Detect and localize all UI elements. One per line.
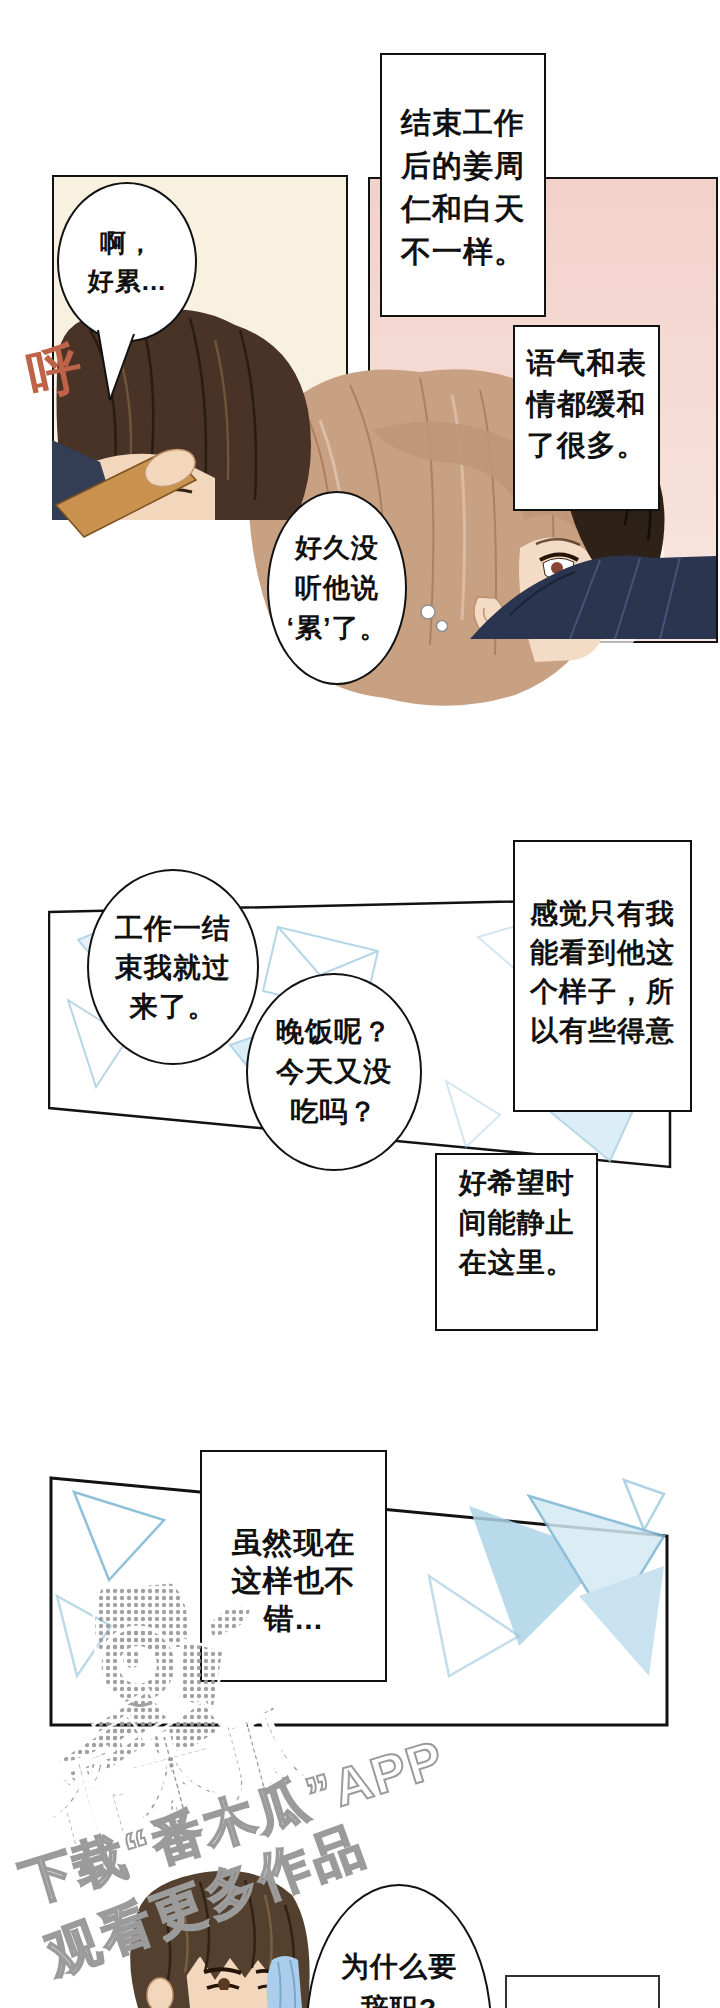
narration-box-4: 好希望时 间能静止 在这里。: [435, 1153, 598, 1331]
narration-line: 感觉只有我: [530, 894, 675, 933]
narration-box-1: 结束工作 后的姜周 仁和白天 不一样。: [380, 53, 546, 317]
bubble-line: 晚饭呢？: [276, 1012, 392, 1052]
narration-line: 不一样。: [401, 230, 525, 273]
narration-line: 能看到他这: [530, 933, 675, 972]
narration-line: 个样子，所: [530, 972, 675, 1011]
narration-line: 情都缓和: [527, 384, 647, 425]
bubble-line: 吃吗？: [291, 1092, 378, 1132]
speech-bubble-resign: 为什么要 辞职?: [306, 1884, 492, 2008]
narration-box-partial: [505, 1975, 660, 2008]
narration-line: 后的姜周: [401, 144, 525, 187]
narration-line: 间能静止: [459, 1203, 575, 1243]
narration-box-2: 语气和表 情都缓和 了很多。: [513, 325, 660, 511]
speech-bubble-dinner: 晚饭呢？ 今天又没 吃吗？: [246, 973, 422, 1171]
bubble-line: 好累...: [88, 262, 167, 300]
bubble-line: 好久没: [295, 528, 379, 568]
bubble-line: 啊，: [100, 224, 154, 262]
bubble-line: 束我就过: [115, 948, 231, 987]
narration-line: 好希望时: [459, 1163, 575, 1203]
bottom-character-hair-strands: [160, 1880, 294, 1990]
blue-towel: [267, 1956, 302, 2008]
narration-line: 语气和表: [527, 343, 647, 384]
bubble-line: 今天又没: [276, 1052, 392, 1092]
narration-line: 虽然现在: [232, 1524, 356, 1562]
speech-bubble-came-over: 工作一结 束我就过 来了。: [87, 869, 259, 1065]
bottom-character-hair: [130, 1871, 309, 2008]
narration-line: 错...: [264, 1600, 323, 1638]
bottom-character-eyes: [204, 1969, 278, 1990]
narration-line: 以有些得意: [530, 1011, 675, 1050]
bubble-line: 辞职?: [361, 1988, 437, 2008]
speech-bubble-tired: 啊， 好累...: [57, 182, 197, 342]
narration-line: 这样也不: [232, 1562, 356, 1600]
speech-bubble-long-time: 好久没 听他说 ‘累’了。: [267, 491, 407, 685]
bubble-line: 工作一结: [115, 909, 231, 948]
comic-page: { "page": {"width": 720, "height": 2008,…: [0, 0, 720, 2008]
bubble-line: 来了。: [130, 987, 217, 1026]
bottom-character-fringe: [165, 1904, 300, 1980]
narration-line: 了很多。: [527, 425, 647, 466]
narration-box-5: 虽然现在 这样也不 错...: [200, 1450, 387, 1682]
bottom-character-face: [147, 1954, 288, 2008]
narration-line: 结束工作: [401, 101, 525, 144]
bubble-line: 听他说: [295, 568, 379, 608]
bubble-line: 为什么要: [341, 1946, 457, 1988]
narration-box-3: 感觉只有我 能看到他这 个样子，所 以有些得意: [513, 840, 692, 1112]
narration-line: 在这里。: [459, 1243, 575, 1283]
narration-line: 仁和白天: [401, 187, 525, 230]
bubble-line: ‘累’了。: [286, 608, 387, 648]
